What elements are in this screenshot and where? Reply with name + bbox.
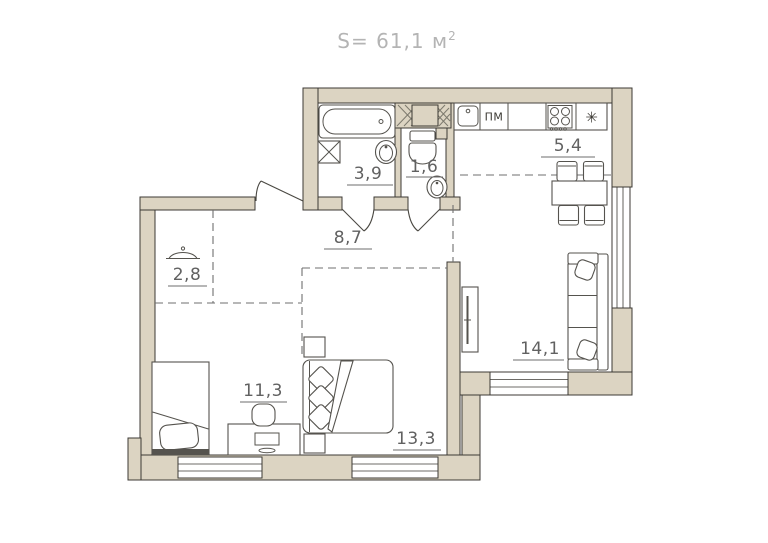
single-bed bbox=[152, 362, 209, 455]
window-bedroom2 bbox=[352, 457, 438, 478]
double-bed bbox=[303, 360, 393, 433]
tv-icon bbox=[462, 287, 478, 352]
room-label-wardrobe: 2,8 bbox=[173, 265, 202, 285]
doors bbox=[256, 181, 440, 231]
total-area-title: S= 61,1 м2 bbox=[337, 29, 456, 53]
nightstand bbox=[304, 434, 325, 453]
pillow bbox=[159, 422, 199, 451]
room-label-wc: 1,6 bbox=[410, 157, 439, 177]
room-label-hallway: 8,7 bbox=[334, 228, 363, 248]
bedroom2-furniture bbox=[303, 337, 393, 453]
wall-left-step bbox=[128, 438, 141, 480]
window-bedroom1 bbox=[178, 457, 262, 478]
wall-right-upper bbox=[612, 88, 632, 187]
wall-top bbox=[303, 88, 632, 103]
window-living-bottom bbox=[490, 372, 568, 395]
desk bbox=[228, 424, 300, 455]
floor-plan: S= 61,1 м2 bbox=[0, 0, 768, 543]
room-label-bathroom: 3,9 bbox=[354, 164, 383, 184]
wc-door bbox=[408, 209, 440, 231]
dining-table bbox=[552, 181, 607, 205]
dining-set bbox=[552, 162, 607, 226]
bathroom-sink-icon bbox=[376, 141, 397, 164]
dishwasher-label: ПМ bbox=[485, 111, 504, 124]
wc-sink-icon bbox=[427, 176, 447, 198]
wall-san-bottom-2 bbox=[374, 197, 408, 210]
entrance-door bbox=[256, 181, 303, 201]
fridge-icon: ✳ bbox=[585, 109, 598, 127]
room-label-bedroom1: 11,3 bbox=[243, 381, 283, 401]
vent-shaft bbox=[395, 103, 451, 128]
window-right bbox=[612, 187, 630, 308]
kitchen-counter: ПМ ✳ bbox=[454, 103, 607, 130]
bathroom-fixtures bbox=[318, 105, 397, 164]
wall-san-bottom-1 bbox=[318, 197, 342, 210]
chair bbox=[585, 206, 605, 226]
room-label-kitchen: 5,4 bbox=[554, 136, 583, 156]
bedroom1-furniture bbox=[152, 362, 300, 455]
chair bbox=[557, 162, 577, 182]
room-label-bedroom2: 13,3 bbox=[396, 429, 436, 449]
wall-bathroom-left bbox=[303, 88, 318, 210]
washing-machine-icon bbox=[318, 141, 340, 163]
wall-hall-top bbox=[140, 197, 255, 210]
room-label-living: 14,1 bbox=[520, 339, 560, 359]
wall-san-bottom-3 bbox=[440, 197, 460, 210]
chair bbox=[559, 206, 579, 226]
wc-corner-box bbox=[436, 128, 447, 139]
desk-chair bbox=[252, 404, 275, 426]
hanger-icon bbox=[166, 247, 200, 259]
sofa bbox=[568, 253, 608, 370]
wall-living-left-pillar bbox=[447, 262, 460, 455]
nightstand bbox=[304, 337, 325, 357]
chair bbox=[584, 162, 604, 182]
bathtub-icon bbox=[319, 105, 395, 138]
